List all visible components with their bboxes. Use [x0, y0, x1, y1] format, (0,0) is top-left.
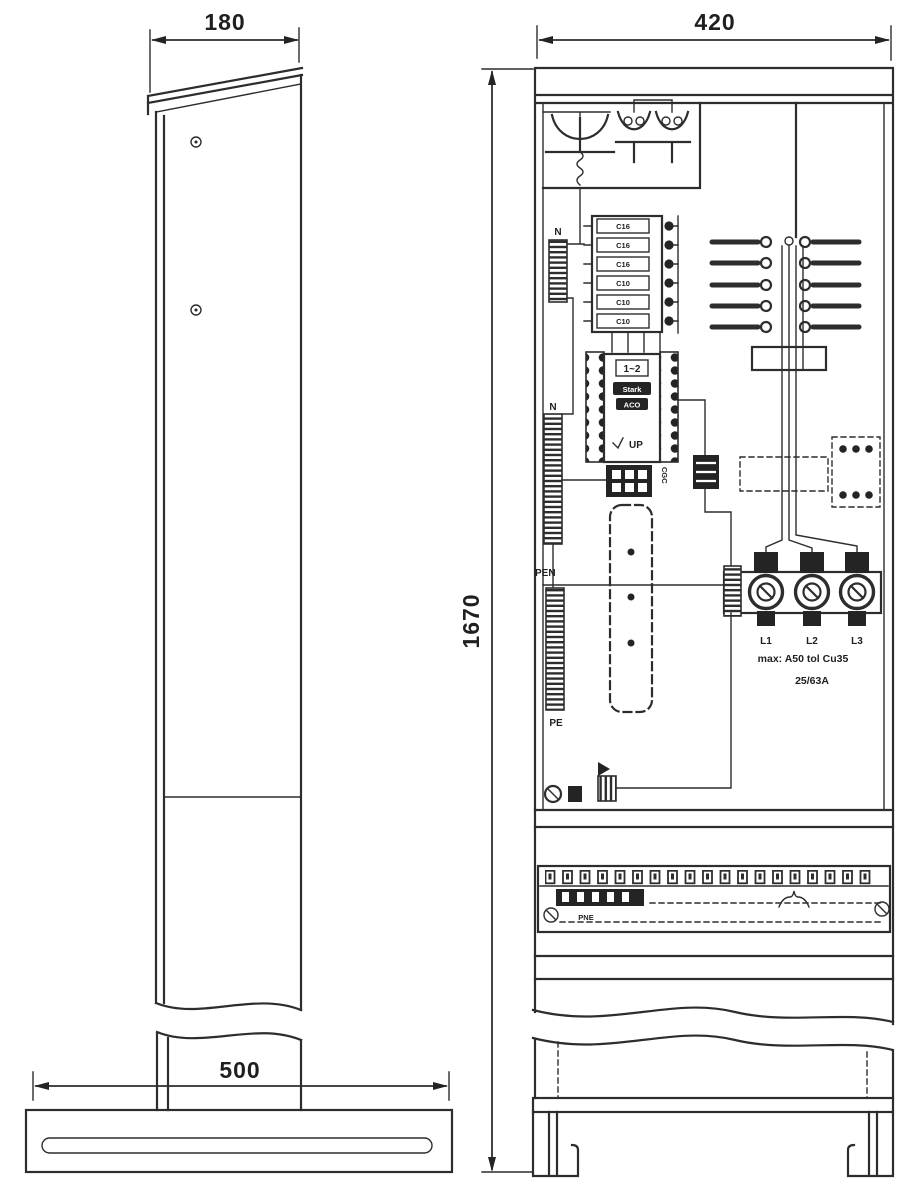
break-line	[157, 1032, 301, 1040]
cable-duct-dashed	[610, 505, 652, 712]
foot-left	[533, 1112, 578, 1176]
lamp-compartment	[543, 100, 700, 188]
busbar-assembly	[712, 103, 859, 553]
lamp-symbol-main	[546, 115, 614, 185]
n-label: N	[554, 227, 561, 238]
breaker-label: C16	[616, 222, 630, 231]
pe-terminal-strip: PE	[546, 588, 564, 729]
breaker-label: C10	[616, 298, 630, 307]
break-line	[533, 1008, 893, 1022]
fuse-holder-l1	[750, 552, 783, 626]
fuse-group: L1 L2 L3 max: A50 tol Cu35 25/63A	[724, 552, 881, 687]
flag-terminal	[598, 776, 616, 801]
break-line	[156, 1003, 301, 1010]
side-base-plate	[26, 1110, 452, 1172]
small-block	[568, 786, 582, 802]
phase-label-l2: L2	[806, 636, 818, 647]
phase-label-l1: L1	[760, 636, 772, 647]
contactor-header: 1~2	[624, 364, 641, 375]
dimension-height: 1670	[458, 69, 533, 1172]
contactor-row1: Stark	[623, 385, 643, 394]
lamp-symbol-3	[654, 112, 690, 162]
arrow-down-icon	[488, 1157, 496, 1172]
floor-lines	[535, 810, 893, 827]
floor-components	[545, 762, 616, 802]
foot-right	[848, 1112, 893, 1176]
pen-drop-wire	[616, 613, 731, 788]
side-body	[156, 75, 301, 1040]
dim-depth-label: 180	[204, 9, 245, 35]
skirt-and-feet	[533, 1008, 893, 1176]
contactor-block: 1~2 Stark ACO UP	[586, 352, 678, 462]
lower-terminal-strip: PNE	[538, 866, 890, 932]
dim-base-width-label: 500	[219, 1057, 260, 1083]
terminal-block	[556, 889, 644, 906]
side-view	[26, 68, 452, 1172]
technical-drawing: 180 500 420 1670	[0, 0, 919, 1200]
arrow-right-icon	[284, 36, 299, 44]
dim-height-label: 1670	[458, 593, 484, 648]
dimension-base-width: 500	[33, 1057, 449, 1100]
arrow-right-icon	[875, 36, 890, 44]
breaker-label: C10	[616, 279, 630, 288]
arrow-left-icon	[151, 36, 166, 44]
dim-width-label: 420	[694, 9, 735, 35]
breaker-label: C10	[616, 317, 630, 326]
side-roof	[148, 68, 302, 114]
clamp-row	[545, 870, 877, 885]
fuse-holder-l2	[796, 552, 829, 626]
arrow-up-icon	[488, 70, 496, 85]
arrow-left-icon	[34, 1082, 49, 1090]
arrow-left-icon	[538, 36, 553, 44]
contactor-footer: UP	[629, 440, 643, 451]
n-terminal-strip-upper: N	[549, 188, 584, 414]
meter-block: CGC	[606, 465, 669, 497]
connector-block	[678, 400, 731, 567]
breaker-stack: C16 C16 C16 C10 C10 C10	[584, 216, 678, 352]
strip-label: PNE	[578, 913, 593, 922]
lamp-symbol-2	[616, 112, 652, 162]
fuse-note-line1: max: A50 tol Cu35	[758, 653, 849, 665]
brace-icon	[779, 891, 809, 907]
pen-label: PEN	[535, 568, 556, 579]
breaker-label: C16	[616, 260, 630, 269]
break-line	[533, 1036, 893, 1050]
fuse-holder-l3	[841, 552, 874, 626]
phase-label-l3: L3	[851, 636, 863, 647]
fuse-note-line2: 25/63A	[795, 675, 829, 687]
mounting-zone-dashed	[740, 437, 880, 507]
pe-label: PE	[549, 718, 563, 729]
front-view: N N PEN PE C16 C16 C16	[533, 68, 893, 1176]
dimension-width: 420	[537, 9, 891, 60]
base-slot	[42, 1138, 432, 1153]
contactor-row2: ACO	[624, 401, 641, 410]
meter-side-label: CGC	[660, 467, 669, 484]
flag-icon	[598, 762, 610, 776]
arrow-right-icon	[433, 1082, 448, 1090]
lower-panel-lines	[535, 956, 893, 979]
n-label: N	[549, 402, 556, 413]
breaker-label: C16	[616, 241, 630, 250]
